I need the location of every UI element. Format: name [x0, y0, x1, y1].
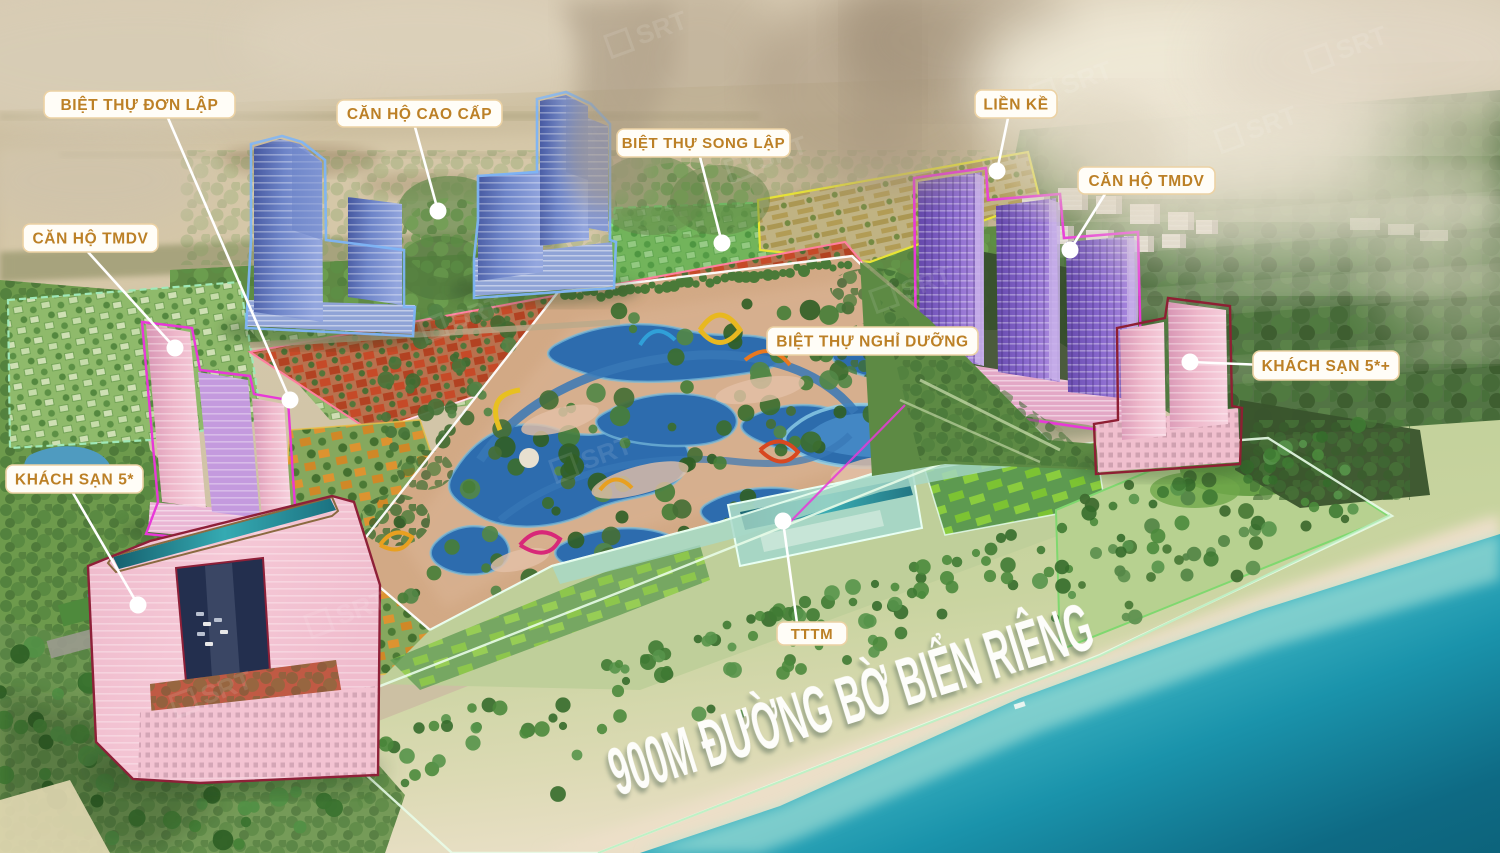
svg-text:LIỀN KỀ: LIỀN KỀ: [983, 96, 1048, 113]
svg-text:CĂN HỘ CAO CẤP: CĂN HỘ CAO CẤP: [347, 105, 492, 123]
svg-text:BIỆT THỰ ĐƠN LẬP: BIỆT THỰ ĐƠN LẬP: [61, 96, 219, 114]
svg-text:TTTM: TTTM: [791, 626, 833, 643]
svg-text:KHÁCH SẠN 5*+: KHÁCH SẠN 5*+: [1262, 358, 1391, 375]
svg-text:BIỆT THỰ SONG LẬP: BIỆT THỰ SONG LẬP: [622, 134, 785, 152]
svg-text:KHÁCH SẠN 5*: KHÁCH SẠN 5*: [15, 471, 135, 488]
svg-text:BIỆT THỰ NGHỈ DƯỠNG: BIỆT THỰ NGHỈ DƯỠNG: [776, 332, 968, 350]
svg-text:CĂN HỘ TMDV: CĂN HỘ TMDV: [1089, 172, 1205, 190]
svg-text:CĂN HỘ TMDV: CĂN HỘ TMDV: [33, 229, 149, 247]
